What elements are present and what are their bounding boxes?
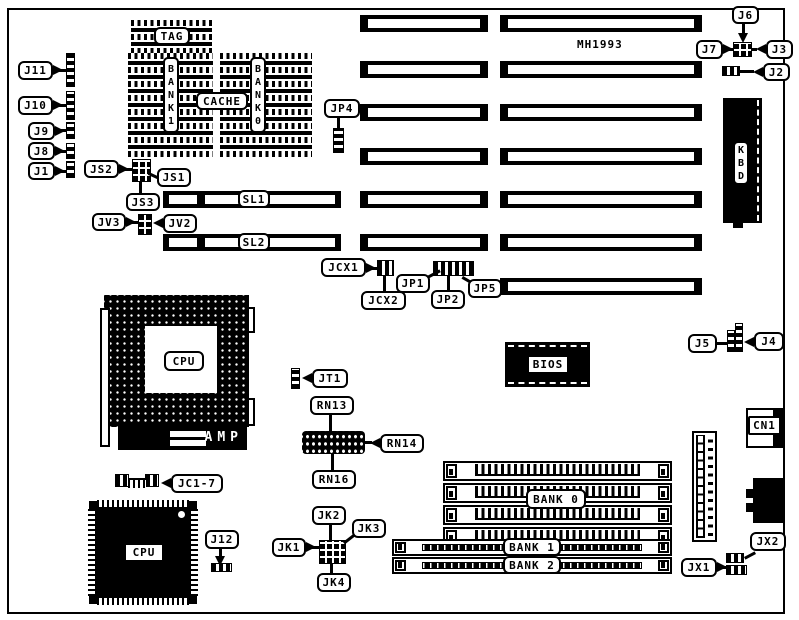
pin-header-jt1 <box>291 368 300 389</box>
amp-voltage-regulator: AMP <box>118 426 247 450</box>
cpu-socket-lever <box>100 308 110 447</box>
label-rn13: RN13 <box>310 396 354 415</box>
label-jp2: JP2 <box>431 290 465 309</box>
jumper-block-js <box>132 159 151 182</box>
cpu-socket-tab-top <box>247 307 255 333</box>
label-jk2: JK2 <box>312 506 346 525</box>
jumper-block-j5j4-left <box>727 330 735 352</box>
jumper-block-jk <box>319 540 346 564</box>
jumper-block-j6 <box>733 42 752 57</box>
label-jp1: JP1 <box>396 274 430 293</box>
label-cpu-socket: CPU <box>164 351 204 371</box>
label-jx2: JX2 <box>750 532 786 551</box>
label-sl1: SL1 <box>238 190 270 208</box>
label-cache-bank1: B A N K 1 <box>163 57 179 133</box>
jumper-block-jcx <box>377 260 394 276</box>
label-sl2: SL2 <box>238 233 270 251</box>
label-bank1: BANK 1 <box>503 538 561 556</box>
isa-slot-segment <box>500 191 702 208</box>
connector-jc1-7 <box>115 474 159 493</box>
label-bios: BIOS <box>527 355 569 374</box>
label-bank0: BANK 0 <box>526 489 586 509</box>
pin-header-j9 <box>66 122 75 139</box>
resistor-network-block <box>302 431 365 454</box>
label-j3: J3 <box>766 40 793 59</box>
din-connector <box>753 478 785 523</box>
isa-slot-segment <box>360 148 488 165</box>
isa-slot-segment <box>360 191 488 208</box>
connector-j2 <box>722 66 740 76</box>
connector-jx2 <box>726 553 744 563</box>
label-jp5: JP5 <box>468 279 502 298</box>
label-cn1: CN1 <box>748 416 781 435</box>
motherboard-diagram: MH1993 SL1 SL2 TAG B A N K 1 B A N K 0 C… <box>0 0 799 620</box>
jumper-block-j5j4-right <box>735 323 743 352</box>
isa-slot-segment <box>500 278 702 295</box>
label-j1: J1 <box>28 162 55 180</box>
label-kbd: K B D <box>733 141 749 185</box>
pin-header-j8 <box>66 143 75 159</box>
label-j12: J12 <box>205 530 239 549</box>
pin-header-j1 <box>66 161 75 178</box>
label-j8: J8 <box>28 142 55 160</box>
isa-slot-segment <box>360 104 488 121</box>
label-j2: J2 <box>763 63 790 81</box>
label-js3: JS3 <box>126 193 160 211</box>
label-bank2: BANK 2 <box>503 556 561 574</box>
label-jk3: JK3 <box>352 519 386 538</box>
label-jt1: JT1 <box>312 369 348 388</box>
simm-socket-bank0 <box>443 461 672 481</box>
label-rn16: RN16 <box>312 470 356 489</box>
isa-slot-segment <box>360 234 488 251</box>
label-jv3: JV3 <box>92 213 126 231</box>
label-jk4: JK4 <box>317 573 351 592</box>
label-jx1: JX1 <box>681 558 717 577</box>
label-j10: J10 <box>18 96 53 115</box>
connector-jx1 <box>726 565 747 575</box>
label-j6: J6 <box>732 6 759 24</box>
isa-slot-segment <box>360 61 488 78</box>
board-model-text: MH1993 <box>577 38 623 51</box>
label-jcx2: JCX2 <box>361 291 406 310</box>
jumper-block-jv <box>138 214 152 235</box>
isa-slot-segment <box>500 148 702 165</box>
pin-header-jp4 <box>333 128 344 153</box>
power-connector <box>692 431 717 542</box>
label-jcx1: JCX1 <box>321 258 366 277</box>
label-js1: JS1 <box>157 168 191 187</box>
label-js2: JS2 <box>84 160 119 178</box>
label-j4: J4 <box>754 332 784 351</box>
isa-slot-segment <box>360 15 488 32</box>
label-j7: J7 <box>696 40 723 59</box>
label-jv2: JV2 <box>163 214 197 233</box>
label-amp: AMP <box>205 430 243 445</box>
pin-header-j10 <box>66 91 75 120</box>
isa-slot-segment <box>500 234 702 251</box>
label-cpu-chip: CPU <box>124 543 164 562</box>
label-jk1: JK1 <box>272 538 306 557</box>
label-jc1-7: JC1-7 <box>171 474 223 493</box>
isa-slot-segment <box>500 15 702 32</box>
label-cache-bank0: B A N K 0 <box>250 57 266 133</box>
label-j11: J11 <box>18 61 53 80</box>
label-cache: CACHE <box>196 92 248 110</box>
label-jp4: JP4 <box>324 99 360 118</box>
label-j9: J9 <box>28 122 55 140</box>
isa-slot-segment <box>500 104 702 121</box>
label-tag: TAG <box>154 27 190 45</box>
pin-header-j11 <box>66 53 75 87</box>
label-j5: J5 <box>688 334 717 353</box>
cpu-socket-tab-bottom <box>247 398 255 426</box>
label-rn14: RN14 <box>380 434 424 453</box>
isa-slot-segment <box>500 61 702 78</box>
